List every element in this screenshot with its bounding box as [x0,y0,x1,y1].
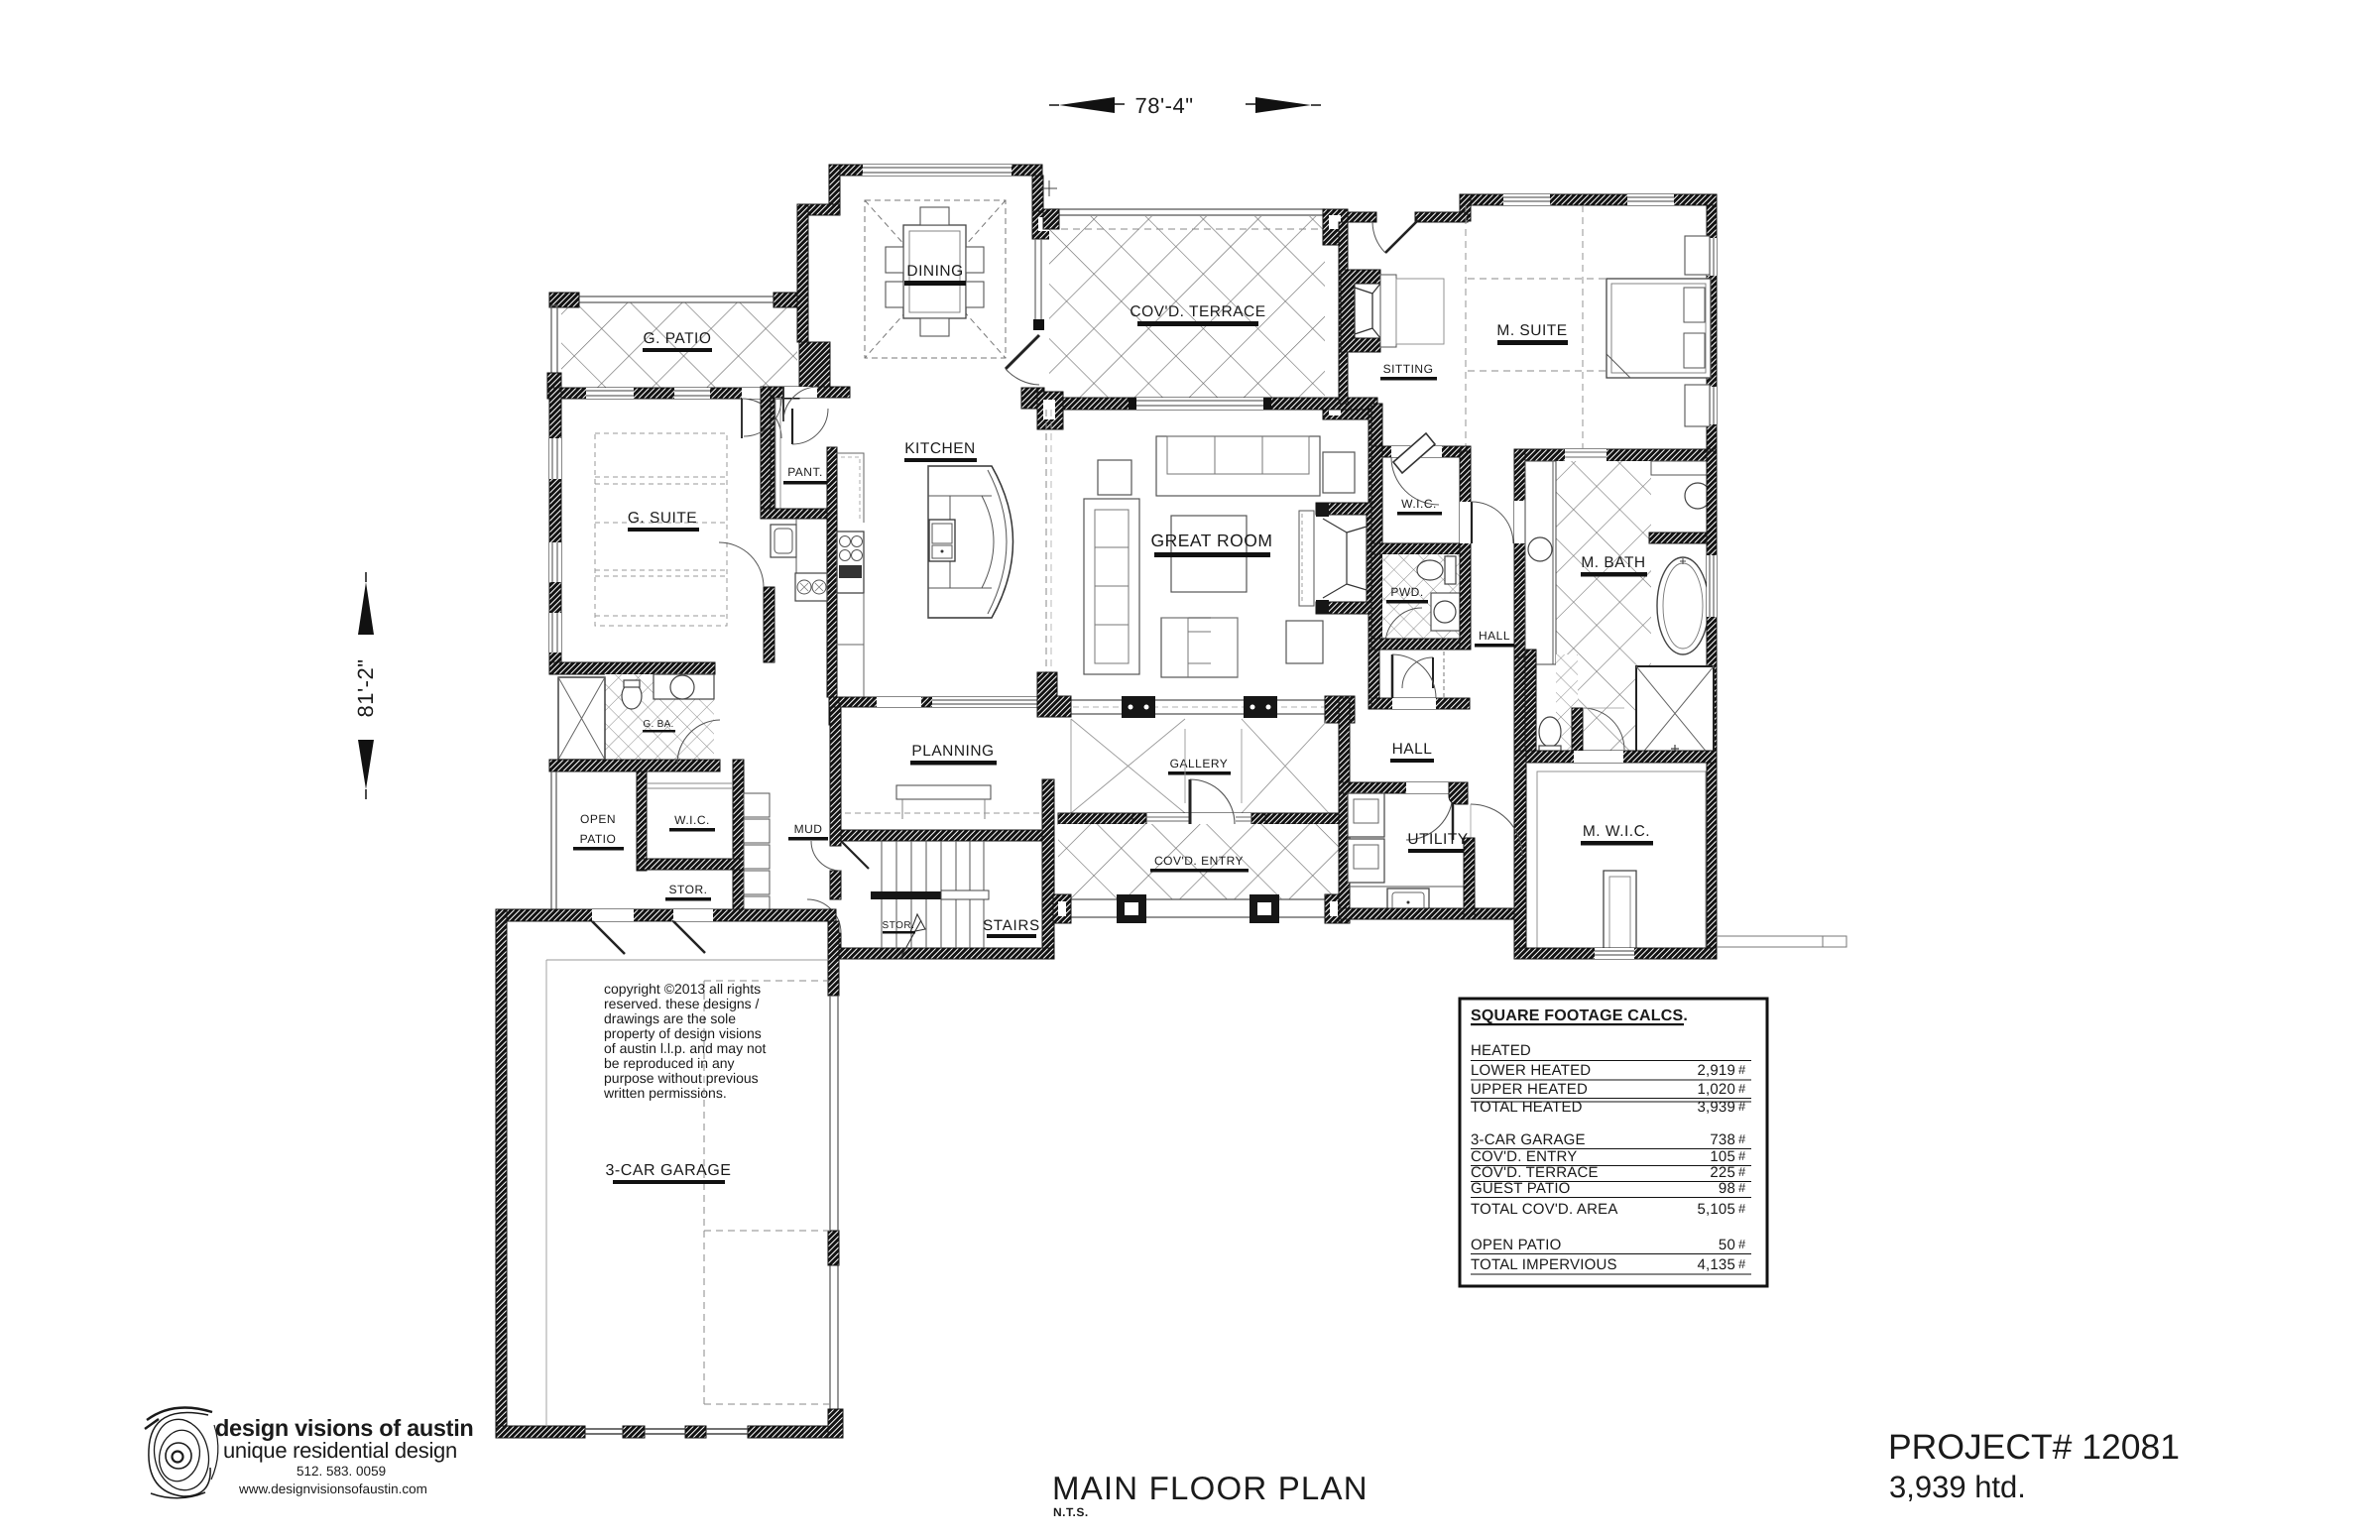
svg-text:N.T.S.: N.T.S. [1053,1505,1089,1519]
svg-text:SITTING: SITTING [1383,362,1434,376]
svg-text:MAIN FLOOR PLAN: MAIN FLOOR PLAN [1052,1470,1368,1506]
svg-text:COV'D. ENTRY: COV'D. ENTRY [1154,854,1244,868]
svg-text:1,020: 1,020 [1697,1081,1735,1098]
svg-text:unique residential design: unique residential design [223,1438,457,1463]
svg-text:HALL: HALL [1479,629,1510,643]
svg-text:GALLERY: GALLERY [1170,757,1229,770]
svg-text:PWD.: PWD. [1390,585,1423,599]
svg-text:#: # [1738,1237,1746,1251]
svg-text:GUEST PATIO: GUEST PATIO [1471,1180,1571,1197]
svg-text:512. 583. 0059: 512. 583. 0059 [297,1464,386,1479]
svg-text:G. PATIO: G. PATIO [644,330,712,347]
svg-text:HEATED: HEATED [1471,1042,1531,1059]
svg-text:PLANNING: PLANNING [911,743,994,760]
svg-text:drawings are the sole: drawings are the sole [604,1010,736,1026]
svg-text:reserved. these designs /: reserved. these designs / [604,996,760,1011]
svg-text:LOWER HEATED: LOWER HEATED [1471,1062,1591,1079]
svg-text:50: 50 [1719,1237,1735,1253]
svg-text:#: # [1738,1256,1746,1271]
svg-text:225: 225 [1710,1164,1735,1181]
svg-text:M. BATH: M. BATH [1581,554,1645,571]
svg-text:STOR.: STOR. [669,883,708,896]
svg-text:3,939 htd.: 3,939 htd. [1889,1470,2026,1504]
svg-text:PANT.: PANT. [787,465,823,479]
svg-text:#: # [1738,1201,1746,1216]
svg-text:UTILITY: UTILITY [1407,831,1468,848]
svg-text:SQUARE FOOTAGE CALCS.: SQUARE FOOTAGE CALCS. [1471,1007,1688,1024]
svg-text:M. W.I.C.: M. W.I.C. [1583,823,1650,840]
svg-text:TOTAL COV'D. AREA: TOTAL COV'D. AREA [1471,1201,1618,1218]
svg-text:STOR.: STOR. [883,920,915,931]
svg-text:HALL: HALL [1392,741,1433,758]
svg-text:OPEN: OPEN [580,812,616,826]
svg-text:#: # [1738,1148,1746,1163]
svg-text:KITCHEN: KITCHEN [904,440,976,457]
svg-text:COV'D. TERRACE: COV'D. TERRACE [1130,303,1265,320]
svg-text:MUD: MUD [794,822,823,836]
svg-text:purpose without previous: purpose without previous [604,1070,759,1086]
svg-text:#: # [1738,1164,1746,1179]
svg-text:G. SUITE: G. SUITE [628,510,697,527]
svg-text:written permissions.: written permissions. [603,1085,727,1101]
svg-text:PATIO: PATIO [580,832,617,846]
svg-text:98: 98 [1719,1180,1735,1197]
svg-text:2,919: 2,919 [1697,1062,1735,1079]
svg-text:STAIRS: STAIRS [983,917,1040,934]
svg-text:OPEN PATIO: OPEN PATIO [1471,1237,1561,1253]
svg-text:be reproduced in any: be reproduced in any [604,1055,735,1071]
svg-text:3-CAR GARAGE: 3-CAR GARAGE [1471,1131,1586,1148]
svg-text:G. BA.: G. BA. [643,719,673,730]
svg-text:#: # [1738,1131,1746,1146]
svg-text:4,135: 4,135 [1697,1256,1735,1273]
svg-text:#: # [1738,1099,1746,1114]
svg-text:copyright ©2013 all rights: copyright ©2013 all rights [604,981,761,997]
svg-text:PROJECT# 12081: PROJECT# 12081 [1888,1427,2180,1467]
svg-text:105: 105 [1710,1148,1735,1165]
svg-text:81'-2": 81'-2" [353,658,378,717]
svg-text:#: # [1738,1081,1746,1096]
svg-text:78'-4": 78'-4" [1134,93,1193,118]
svg-text:of austin l.l.p. and may not: of austin l.l.p. and may not [604,1040,767,1056]
svg-text:W.I.C.: W.I.C. [1401,497,1437,511]
svg-text:UPPER HEATED: UPPER HEATED [1471,1081,1588,1098]
svg-text:#: # [1738,1180,1746,1195]
svg-text:3-CAR GARAGE: 3-CAR GARAGE [606,1162,732,1179]
svg-text:TOTAL IMPERVIOUS: TOTAL IMPERVIOUS [1471,1256,1617,1273]
svg-text:property of design visions: property of design visions [604,1025,762,1041]
svg-text:5,105: 5,105 [1697,1201,1735,1218]
svg-text:GREAT ROOM: GREAT ROOM [1151,531,1273,550]
svg-text:COV'D. TERRACE: COV'D. TERRACE [1471,1164,1599,1181]
svg-text:#: # [1738,1062,1746,1077]
svg-text:DINING: DINING [906,263,963,280]
svg-text:M. SUITE: M. SUITE [1496,322,1567,339]
svg-text:W.I.C.: W.I.C. [674,813,710,827]
svg-text:www.designvisionsofaustin.com: www.designvisionsofaustin.com [238,1481,427,1496]
svg-text:738: 738 [1710,1131,1735,1148]
svg-text:COV'D. ENTRY: COV'D. ENTRY [1471,1148,1578,1165]
